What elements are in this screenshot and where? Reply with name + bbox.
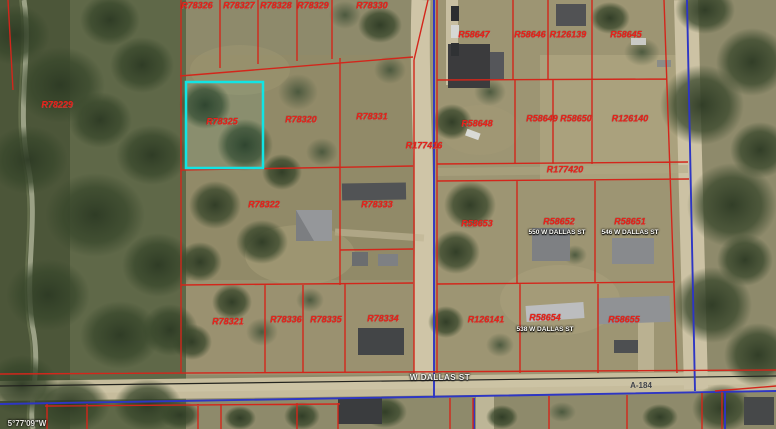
parcel-label-R58647[interactable]: R58647 <box>458 31 490 40</box>
parcel-label-R177420[interactable]: R177420 <box>547 166 584 175</box>
parcel-label-R78331[interactable]: R78331 <box>356 113 388 122</box>
parcel-label-R78330[interactable]: R78330 <box>356 2 388 11</box>
parcel-label-R78335[interactable]: R78335 <box>310 316 342 325</box>
parcel-label-R58648[interactable]: R58648 <box>461 120 493 129</box>
parcel-label-R78329[interactable]: R78329 <box>297 2 329 11</box>
coordinate-label: 5°77'09"W <box>8 420 47 428</box>
address-label: 550 W DALLAS ST <box>528 230 585 237</box>
road-label: W DALLAS ST <box>410 374 470 382</box>
parcel-label-R58654[interactable]: R58654 <box>529 314 561 323</box>
parcel-label-R78320[interactable]: R78320 <box>285 116 317 125</box>
parcel-label-R177416[interactable]: R177416 <box>406 142 443 151</box>
parcel-label-R78229[interactable]: R78229 <box>41 101 73 110</box>
parcel-label-R58645[interactable]: R58645 <box>610 31 642 40</box>
gis-map-viewport[interactable]: R78326R78327R78328R78329R78330R58647R586… <box>0 0 776 429</box>
labels-layer: R78326R78327R78328R78329R78330R58647R586… <box>0 0 776 429</box>
parcel-label-R58653[interactable]: R58653 <box>461 220 493 229</box>
parcel-label-R58649[interactable]: R58649 <box>526 115 558 124</box>
address-label: 546 W DALLAS ST <box>601 230 658 237</box>
parcel-label-R78334[interactable]: R78334 <box>367 315 399 324</box>
parcel-label-R58646[interactable]: R58646 <box>514 31 546 40</box>
address-label: 538 W DALLAS ST <box>516 327 573 334</box>
road-label: A-184 <box>630 382 652 390</box>
parcel-label-R58650[interactable]: R58650 <box>560 115 592 124</box>
parcel-label-R58651[interactable]: R58651 <box>614 218 646 227</box>
parcel-label-R78325[interactable]: R78325 <box>206 118 238 127</box>
parcel-label-R78327[interactable]: R78327 <box>223 2 255 11</box>
parcel-label-R126140[interactable]: R126140 <box>612 115 649 124</box>
parcel-label-R126141[interactable]: R126141 <box>468 316 505 325</box>
parcel-label-R78326[interactable]: R78326 <box>181 2 213 11</box>
parcel-label-R78328[interactable]: R78328 <box>260 2 292 11</box>
parcel-label-R126139[interactable]: R126139 <box>550 31 587 40</box>
parcel-label-R78333[interactable]: R78333 <box>361 201 393 210</box>
parcel-label-R78336[interactable]: R78336 <box>270 316 302 325</box>
parcel-label-R78322[interactable]: R78322 <box>248 201 280 210</box>
parcel-label-R58655[interactable]: R58655 <box>608 316 640 325</box>
parcel-label-R78321[interactable]: R78321 <box>212 318 244 327</box>
parcel-label-R58652[interactable]: R58652 <box>543 218 575 227</box>
